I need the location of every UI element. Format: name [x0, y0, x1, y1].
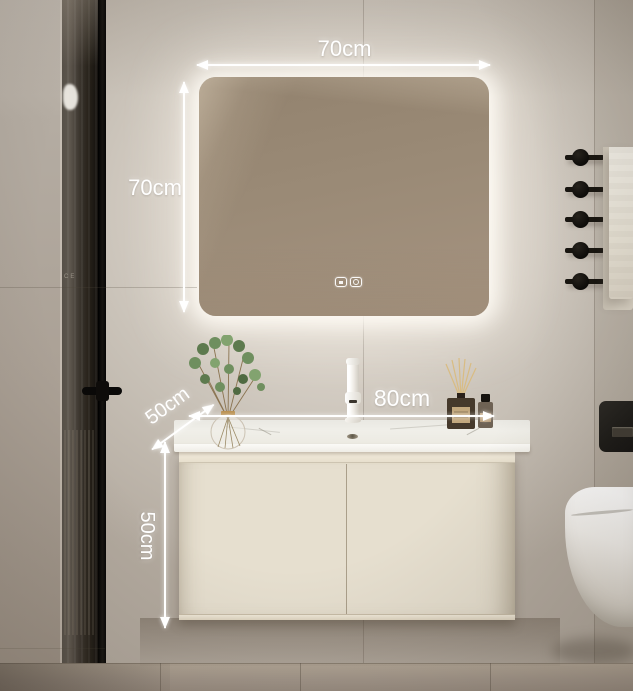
defog-button-icon: [335, 277, 347, 287]
glass-cabinet-reflection: [64, 430, 96, 635]
cabinet-top-rail: [179, 452, 515, 463]
tile-seam-horizontal-left: [0, 287, 197, 288]
faucet-cap: [346, 358, 360, 365]
glass-etched-marking: CE: [64, 274, 76, 280]
dimension-label-vanity-width: 80cm: [371, 387, 433, 410]
left-wall-panel: [0, 0, 62, 663]
bathroom-product-photo: CE: [0, 0, 633, 691]
floor: [0, 663, 633, 691]
dimension-arrow-mirror-width: [197, 64, 490, 66]
toilet-bowl: [565, 487, 633, 627]
toilet-floor-shadow: [552, 638, 633, 664]
cabinet-fluted-doors: [182, 464, 512, 614]
faucet-base: [345, 417, 361, 423]
basin-drain: [347, 434, 358, 439]
flush-plate: [599, 401, 633, 452]
wall-floor-junction: [0, 663, 633, 664]
faucet-aerator-slot: [349, 400, 357, 403]
towel-bar: [565, 217, 604, 222]
power-button-icon: [350, 277, 362, 287]
shower-glass-panel: CE: [62, 0, 98, 663]
dimension-arrow-cabinet-height: [164, 442, 166, 628]
shower-door-handle-knob: [96, 381, 109, 401]
towel: [609, 147, 633, 299]
cabinet-bottom-rail: [179, 614, 515, 620]
towel-bar: [565, 187, 604, 192]
shower-frame: [98, 0, 106, 663]
tile-seam-horizontal-left-lower: [0, 648, 105, 649]
towel-bar: [565, 279, 604, 284]
floor-seam: [300, 663, 301, 691]
wall-hung-toilet: [565, 487, 633, 627]
floor-seam: [490, 663, 491, 691]
floor-seam: [160, 663, 161, 691]
glass-highlight-blob: [63, 84, 78, 110]
flush-button: [612, 427, 633, 437]
cabinet-door-gap: [346, 464, 347, 614]
dimension-label-cabinet-height: 50cm: [137, 506, 157, 566]
under-cabinet-shadow: [140, 618, 560, 666]
towel-bar: [565, 248, 604, 253]
dimension-arrow-mirror-height: [183, 82, 185, 312]
dimension-label-mirror-height: 70cm: [125, 177, 185, 199]
dimension-arrow-vanity-width: [189, 415, 494, 417]
dimension-label-mirror-width: 70cm: [297, 38, 392, 60]
towel-bar: [565, 155, 604, 160]
floor-shadow-left: [0, 663, 170, 691]
vanity-cabinet: [179, 452, 515, 620]
